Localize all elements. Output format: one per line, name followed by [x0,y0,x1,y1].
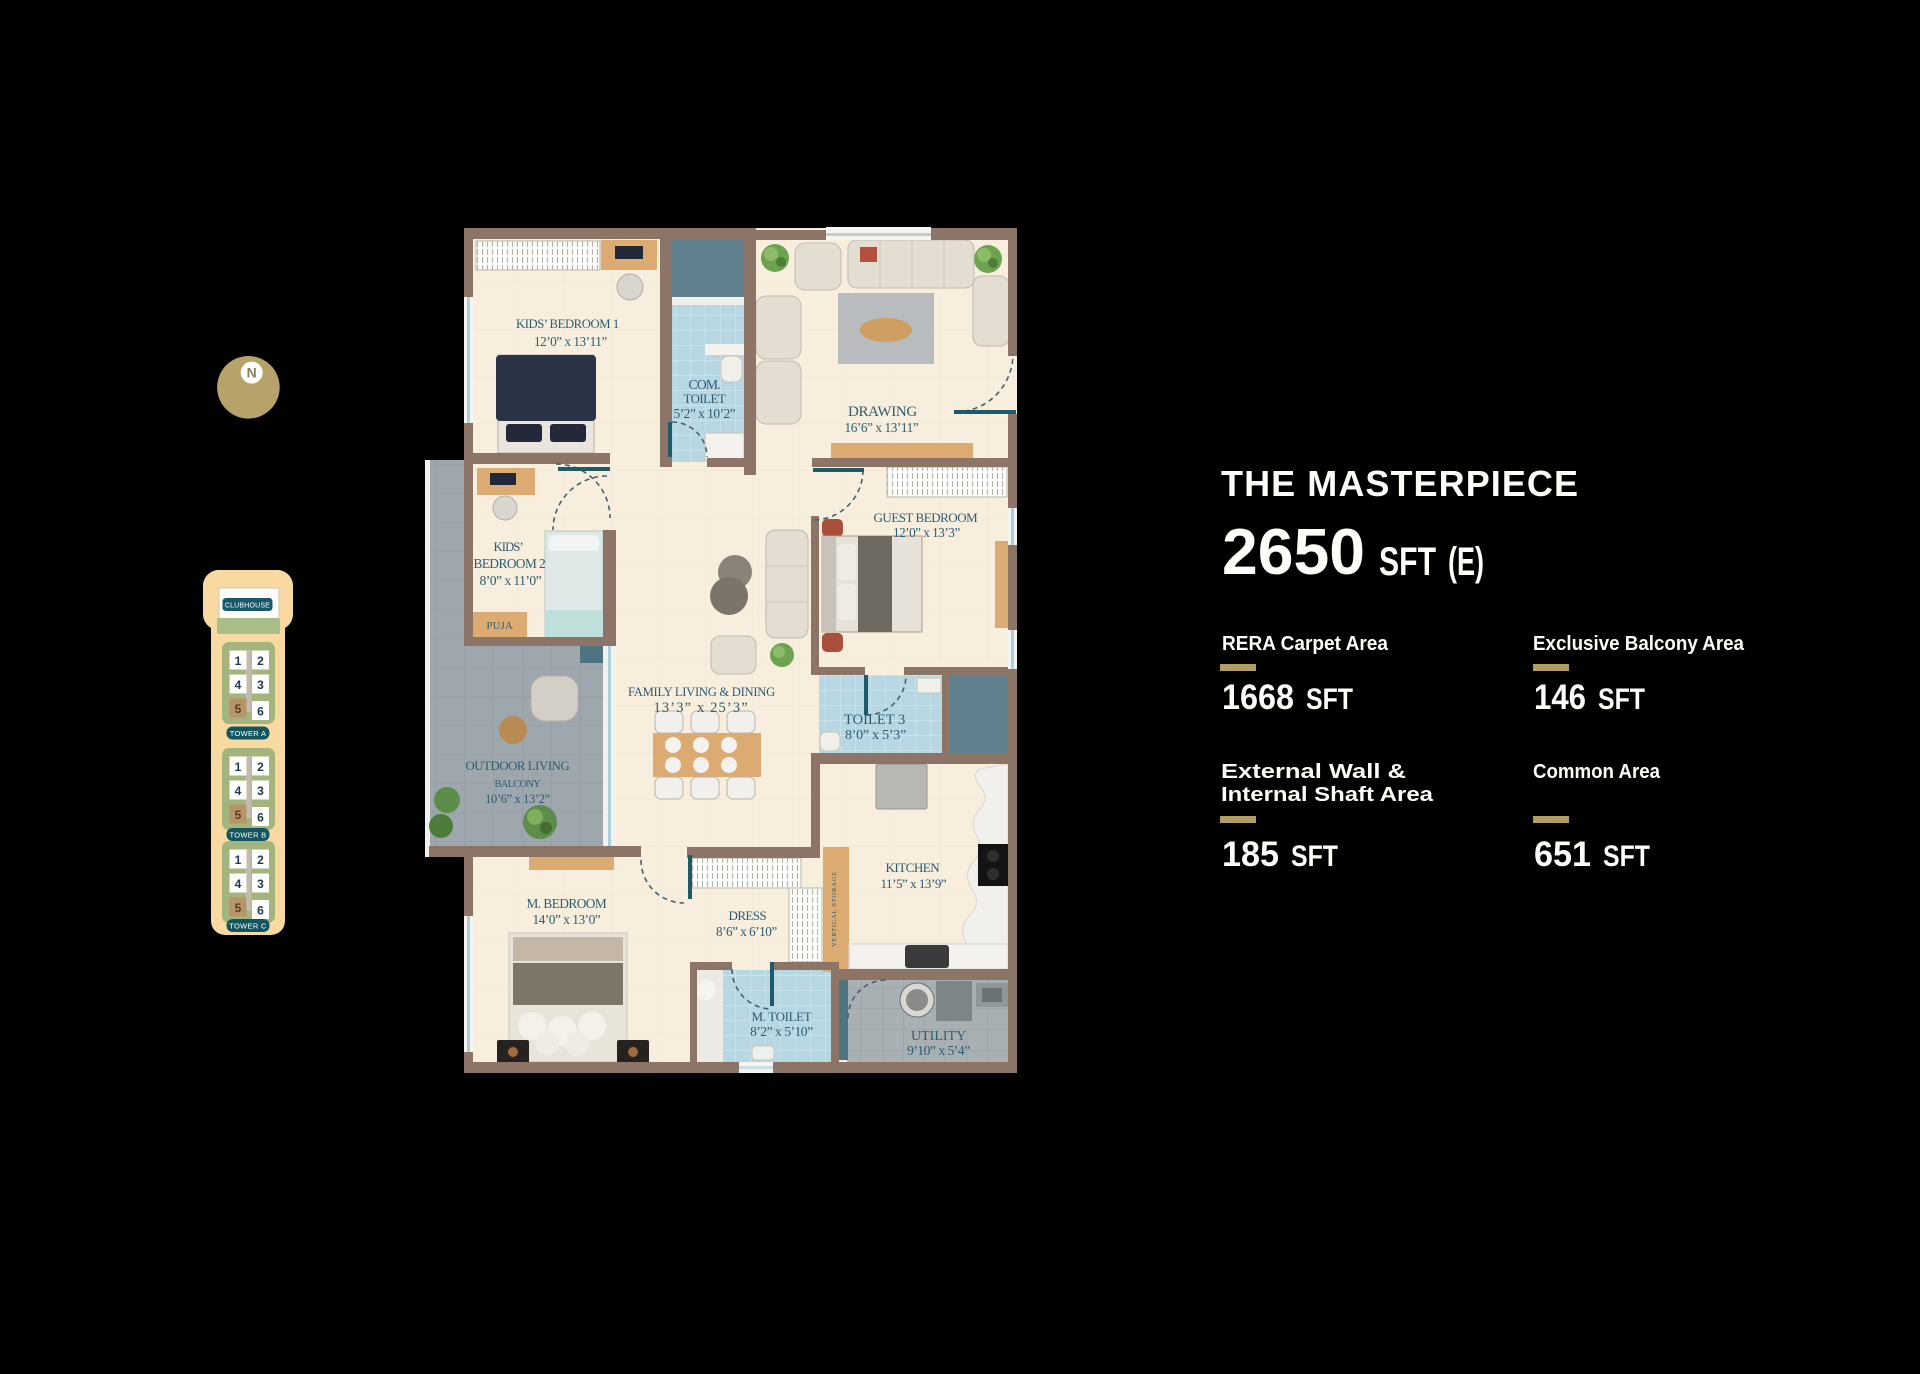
svg-text:TOILET: TOILET [684,392,727,406]
svg-text:SFT: SFT [1379,540,1436,584]
svg-text:GUEST BEDROOM: GUEST BEDROOM [874,510,979,525]
svg-text:OUTDOOR LIVING: OUTDOOR LIVING [466,759,571,773]
svg-text:KIDS’: KIDS’ [494,540,525,554]
svg-text:KIDS’ BEDROOM 1: KIDS’ BEDROOM 1 [516,317,620,331]
svg-text:4: 4 [235,678,242,692]
svg-text:146: 146 [1534,678,1586,717]
svg-text:TOWER B: TOWER B [230,831,267,840]
svg-text:3: 3 [257,678,264,692]
svg-text:5: 5 [235,808,242,822]
svg-text:Internal Shaft Area: Internal Shaft Area [1221,783,1434,806]
svg-text:SFT: SFT [1306,683,1353,716]
svg-text:KITCHEN: KITCHEN [886,860,941,875]
svg-text:External Wall &: External Wall & [1221,760,1406,783]
svg-text:4: 4 [235,877,242,891]
svg-text:2650: 2650 [1222,516,1365,588]
svg-text:185: 185 [1222,835,1279,874]
svg-text:TOWER C: TOWER C [229,922,267,931]
svg-text:5: 5 [235,901,242,915]
svg-text:8’0” x 5’3”: 8’0” x 5’3” [845,728,907,743]
svg-text:BALCONY: BALCONY [495,779,542,790]
svg-text:SFT: SFT [1603,840,1650,873]
svg-text:14’0” x 13’0”: 14’0” x 13’0” [533,912,602,927]
svg-text:M. BEDROOM: M. BEDROOM [527,896,608,911]
svg-text:8’0” x 11’0”: 8’0” x 11’0” [480,573,543,588]
svg-text:1668: 1668 [1222,678,1294,717]
svg-text:1: 1 [235,760,242,774]
svg-text:TOWER A: TOWER A [230,729,267,738]
svg-text:Exclusive Balcony Area: Exclusive Balcony Area [1533,632,1745,655]
svg-text:2: 2 [257,654,264,668]
svg-text:2: 2 [257,853,264,867]
svg-text:3: 3 [257,877,264,891]
svg-text:DRAWING: DRAWING [848,404,918,420]
svg-text:N: N [247,365,257,381]
svg-text:(E): (E) [1448,540,1484,584]
svg-text:6: 6 [257,904,264,918]
svg-text:M. TOILET: M. TOILET [752,1009,813,1024]
svg-text:RERA Carpet Area: RERA Carpet Area [1222,632,1389,655]
svg-text:12’0” x 13’11”: 12’0” x 13’11” [534,334,608,349]
svg-text:8’2” x 5’10”: 8’2” x 5’10” [750,1024,814,1039]
svg-text:9’10” x 5’4”: 9’10” x 5’4” [907,1043,971,1058]
svg-text:5: 5 [235,702,242,716]
svg-text:TOILET 3: TOILET 3 [844,712,906,728]
svg-text:12’0” x 13’3”: 12’0” x 13’3” [893,525,961,540]
svg-text:UTILITY: UTILITY [911,1029,967,1044]
svg-text:1: 1 [235,853,242,867]
svg-text:VERTICAL STORAGE: VERTICAL STORAGE [831,871,838,947]
svg-text:11’5” x 13’9”: 11’5” x 13’9” [881,876,948,891]
svg-text:PUJA: PUJA [487,621,514,632]
svg-text:THE MASTERPIECE: THE MASTERPIECE [1221,463,1578,504]
svg-text:Common Area: Common Area [1533,760,1661,783]
svg-text:SFT: SFT [1598,683,1645,716]
svg-text:10’6” x 13’2”: 10’6” x 13’2” [485,792,551,806]
svg-text:4: 4 [235,784,242,798]
svg-text:1: 1 [235,654,242,668]
svg-text:CLUBHOUSE: CLUBHOUSE [225,603,270,610]
svg-text:3: 3 [257,784,264,798]
svg-text:8’6” x 6’10”: 8’6” x 6’10” [716,924,778,939]
svg-text:2: 2 [257,760,264,774]
svg-text:SFT: SFT [1291,840,1338,873]
svg-text:16’6” x 13’11”: 16’6” x 13’11” [845,420,920,435]
svg-text:5’2” x 10’2”: 5’2” x 10’2” [674,406,737,421]
svg-text:BEDROOM 2: BEDROOM 2 [474,556,547,571]
svg-text:6: 6 [257,705,264,719]
svg-text:COM.: COM. [689,377,722,392]
svg-text:FAMILY LIVING & DINING: FAMILY LIVING & DINING [628,685,776,699]
svg-text:6: 6 [257,811,264,825]
svg-text:13’3” x 25’3”: 13’3” x 25’3” [654,700,749,716]
svg-text:651: 651 [1534,835,1591,874]
svg-text:DRESS: DRESS [729,908,768,923]
